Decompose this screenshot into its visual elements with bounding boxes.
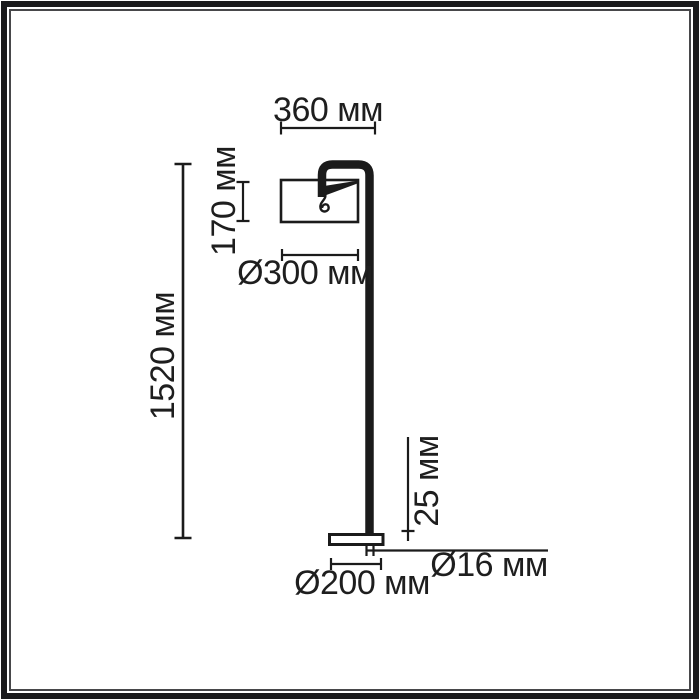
dim-label-shade-diameter: Ø300 мм — [237, 256, 373, 290]
dim-label-shade-height: 170 мм — [207, 146, 241, 256]
lamp-base — [330, 535, 384, 545]
dim-label-base-thickness: 25 мм — [410, 435, 444, 527]
dim-label-total-height: 1520 мм — [146, 292, 180, 420]
dim-label-pole-diameter: Ø16 мм — [430, 548, 547, 582]
dim-label-base-diameter: Ø200 мм — [294, 566, 430, 600]
diagram-canvas: 360 мм 170 мм Ø300 мм 1520 мм 25 мм Ø16 … — [0, 0, 700, 700]
lamp-drawing — [281, 165, 383, 545]
dim-label-arm-reach: 360 мм — [273, 93, 383, 127]
